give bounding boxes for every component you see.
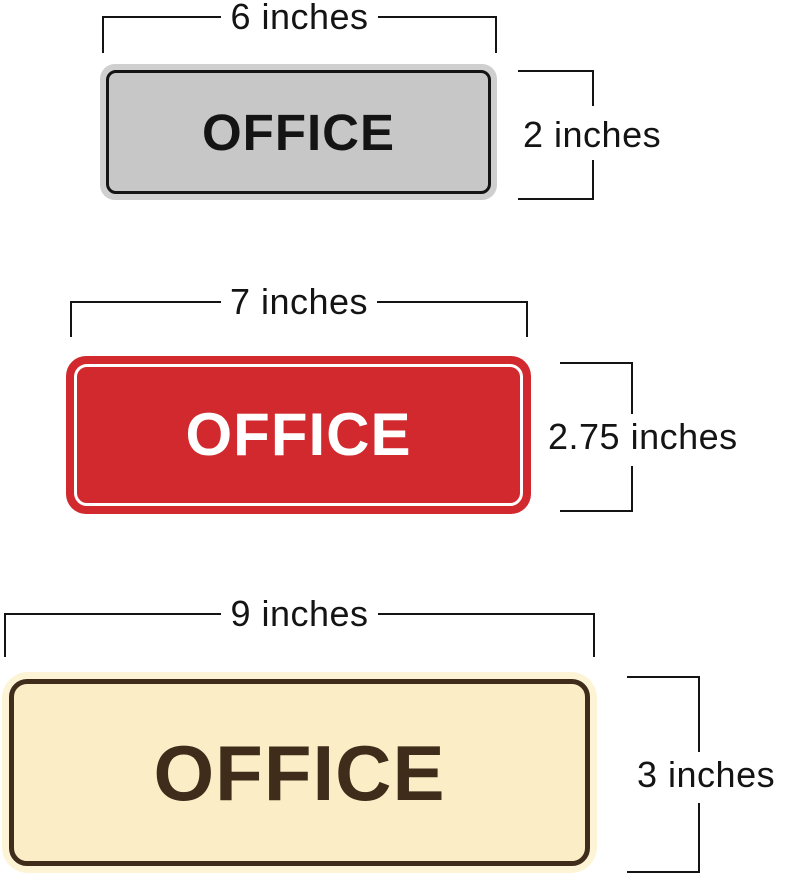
dimension-line bbox=[698, 676, 700, 752]
height-label-large-sign: 3 inches bbox=[637, 757, 775, 793]
dimension-line bbox=[592, 70, 594, 106]
height-dimension-small-sign: 2 inches bbox=[518, 70, 594, 200]
width-label-medium-sign: 7 inches bbox=[221, 284, 377, 320]
office-sign-large: OFFICE bbox=[2, 672, 597, 873]
office-sign-large-text: OFFICE bbox=[154, 734, 446, 812]
dimension-line bbox=[378, 613, 593, 615]
height-dimension-large-sign: 3 inches bbox=[627, 676, 700, 873]
height-label-small-sign: 2 inches bbox=[523, 117, 661, 153]
width-label-large-sign: 9 inches bbox=[221, 596, 377, 632]
office-sign-medium: OFFICE bbox=[66, 356, 531, 514]
dimension-line bbox=[378, 16, 495, 18]
dimension-line bbox=[104, 16, 221, 18]
dimension-line bbox=[6, 613, 221, 615]
dimension-end-tick-right bbox=[495, 16, 497, 53]
dimension-line bbox=[631, 362, 633, 414]
width-label-small-sign: 6 inches bbox=[221, 0, 377, 35]
dimension-end-tick-top bbox=[627, 676, 700, 678]
dimension-end-tick-top bbox=[518, 70, 594, 72]
office-sign-small-text: OFFICE bbox=[202, 107, 395, 158]
dimension-end-tick-bottom bbox=[627, 871, 700, 873]
office-sign-medium-face: OFFICE bbox=[74, 364, 523, 506]
dimension-end-tick-right bbox=[593, 613, 595, 657]
office-sign-small: OFFICE bbox=[100, 64, 497, 200]
dimension-end-tick-top bbox=[560, 362, 633, 364]
dimension-end-tick-right bbox=[526, 301, 528, 337]
dimension-line bbox=[72, 301, 221, 303]
dimension-line bbox=[631, 466, 633, 512]
office-sign-small-face: OFFICE bbox=[106, 70, 491, 194]
dimension-line bbox=[377, 301, 526, 303]
sign-size-comparison-diagram: 6 inches OFFICE 2 inches 7 inches OFFICE bbox=[0, 0, 795, 876]
dimension-end-tick-bottom bbox=[560, 510, 633, 512]
dimension-line bbox=[592, 160, 594, 200]
office-sign-large-face: OFFICE bbox=[9, 679, 590, 866]
dimension-line bbox=[698, 803, 700, 873]
dimension-end-tick-bottom bbox=[518, 198, 594, 200]
height-dimension-medium-sign: 2.75 inches bbox=[560, 362, 633, 512]
office-sign-medium-text: OFFICE bbox=[186, 405, 412, 465]
height-label-medium-sign: 2.75 inches bbox=[548, 419, 738, 455]
